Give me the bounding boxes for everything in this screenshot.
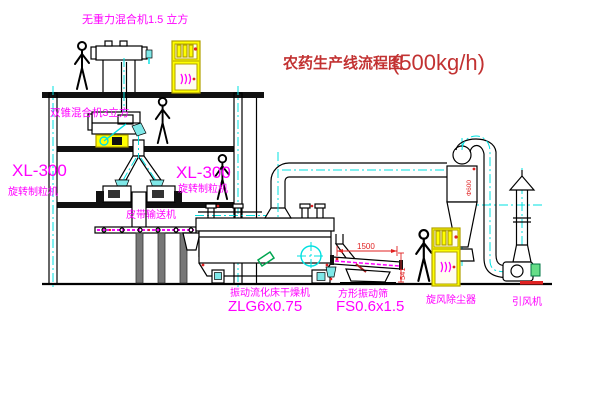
fan-motor xyxy=(531,264,540,276)
indicator-lamp xyxy=(454,235,457,238)
worker-figure-second-floor xyxy=(156,98,169,143)
process-flow-diagram: 1500 541 Φ600 xyxy=(0,0,600,403)
rain-cap xyxy=(510,176,534,190)
screen-discharge xyxy=(326,267,336,277)
title-capacity: (500kg/h) xyxy=(392,50,485,75)
vibrating-screen: 1500 541 xyxy=(326,242,407,283)
control-cabinet-ground xyxy=(432,228,460,286)
diagram-title: 农药生产线流程图 (500kg/h) xyxy=(282,50,485,75)
control-cabinet-top xyxy=(172,41,200,93)
fan-base xyxy=(520,281,543,285)
label-cyclone: 旋风除尘器 xyxy=(426,293,476,306)
svg-text:1500: 1500 xyxy=(357,242,375,251)
worker-figure-ground xyxy=(416,230,431,281)
label-dryer-model: ZLG6x0.75 xyxy=(228,298,302,315)
induced-draft-fan xyxy=(503,168,543,287)
label-fan: 引风机 xyxy=(512,295,542,308)
cyclone-diameter-label: Φ600 xyxy=(466,180,473,196)
exhaust-duct xyxy=(271,152,447,218)
dimension-541: 541 xyxy=(398,253,407,282)
mixer-outlet-fitting xyxy=(146,50,152,58)
label-granulator-name-left: 旋转制粒机 xyxy=(8,185,58,198)
label-top-mixer: 无重力混合机1.5 立方 xyxy=(82,12,188,26)
svg-text:541: 541 xyxy=(398,267,407,280)
label-granulator-name-mid: 旋转制粒机 xyxy=(178,182,228,195)
indicator-lamp xyxy=(194,47,197,50)
label-screen-model: FS0.6x1.5 xyxy=(336,298,404,315)
label-belt-conveyor: 皮带输送机 xyxy=(126,208,176,221)
label-granulator-model-mid: XL-300 xyxy=(176,163,231,182)
worker-figure-top xyxy=(75,42,89,89)
label-granulator-model-left: XL-300 xyxy=(12,161,67,180)
label-second-mixer: 双锥混合机3立方 xyxy=(50,106,129,119)
title-text: 农药生产线流程图 xyxy=(282,54,403,72)
diagram-drawing: 1500 541 Φ600 xyxy=(0,0,600,403)
